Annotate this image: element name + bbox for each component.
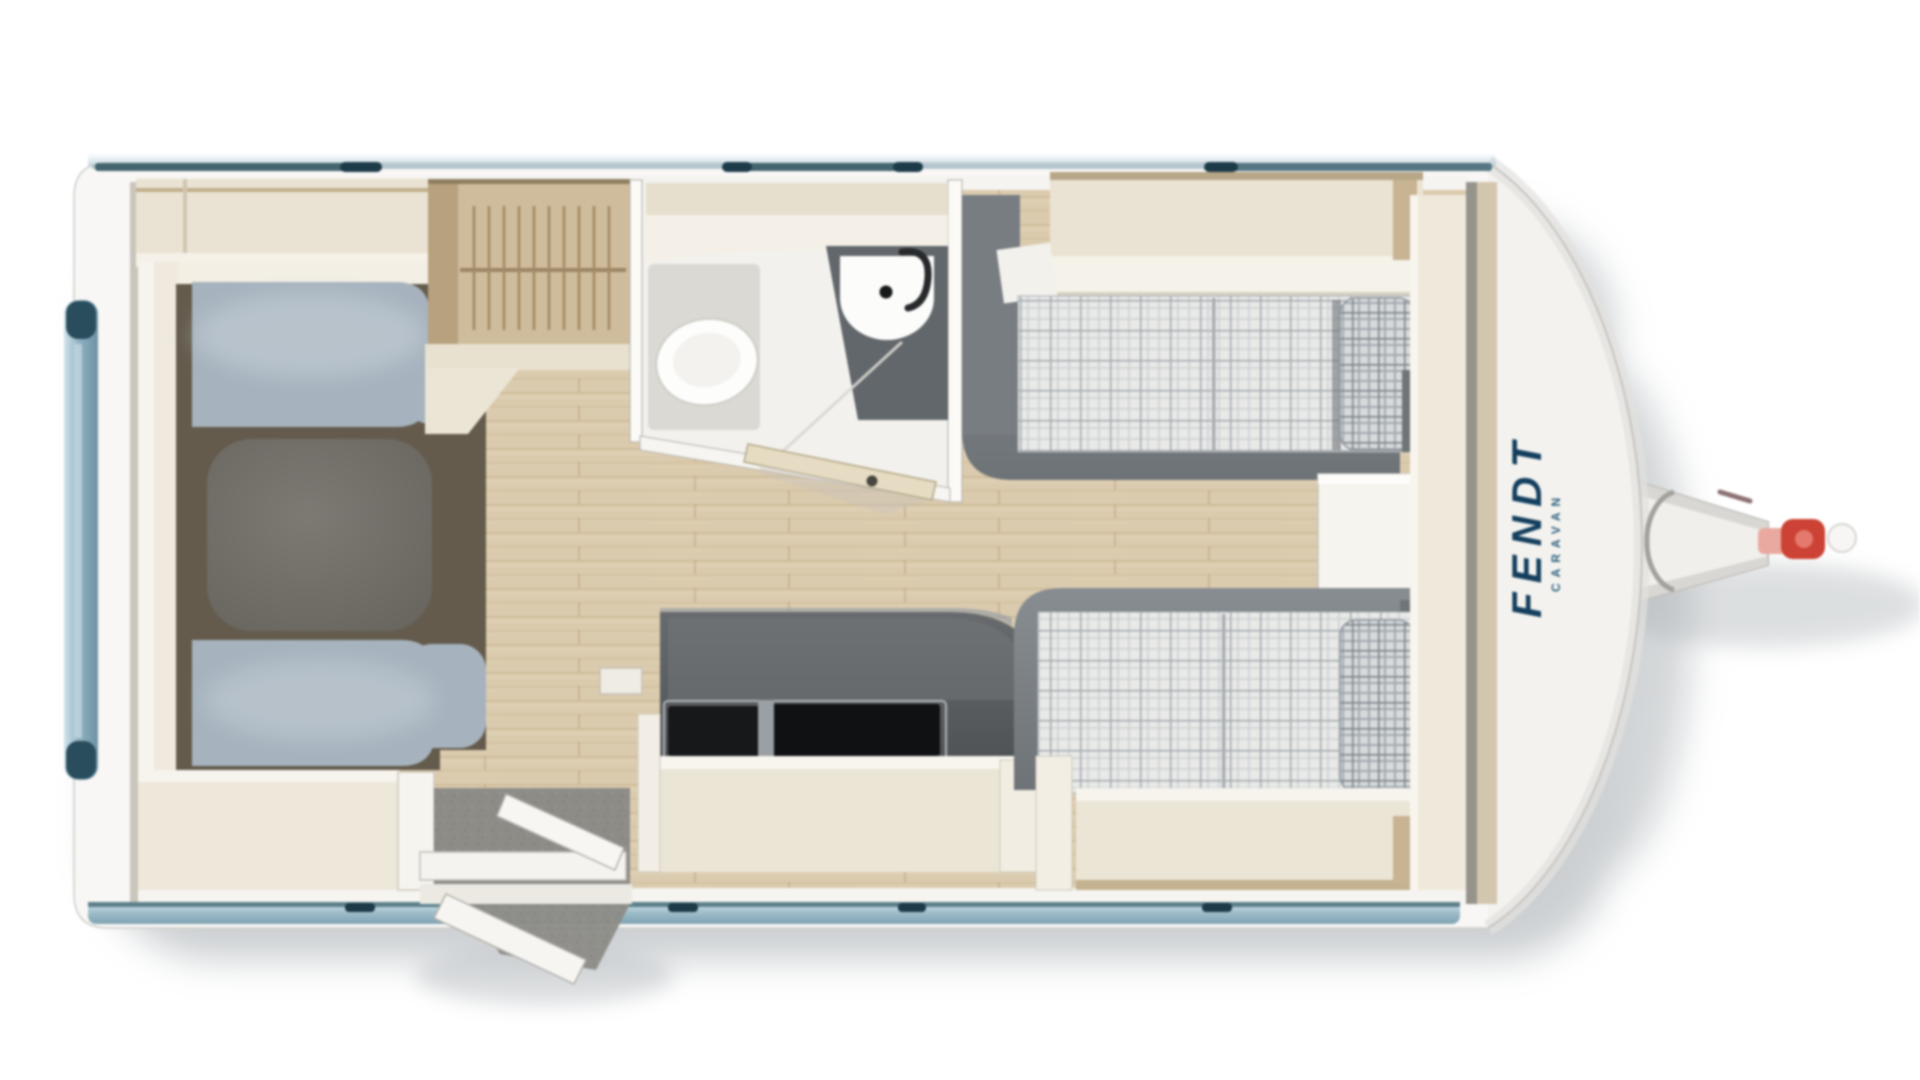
svg-text:CARAVAN: CARAVAN [1549, 492, 1563, 592]
svg-text:FENDT: FENDT [1503, 433, 1550, 618]
